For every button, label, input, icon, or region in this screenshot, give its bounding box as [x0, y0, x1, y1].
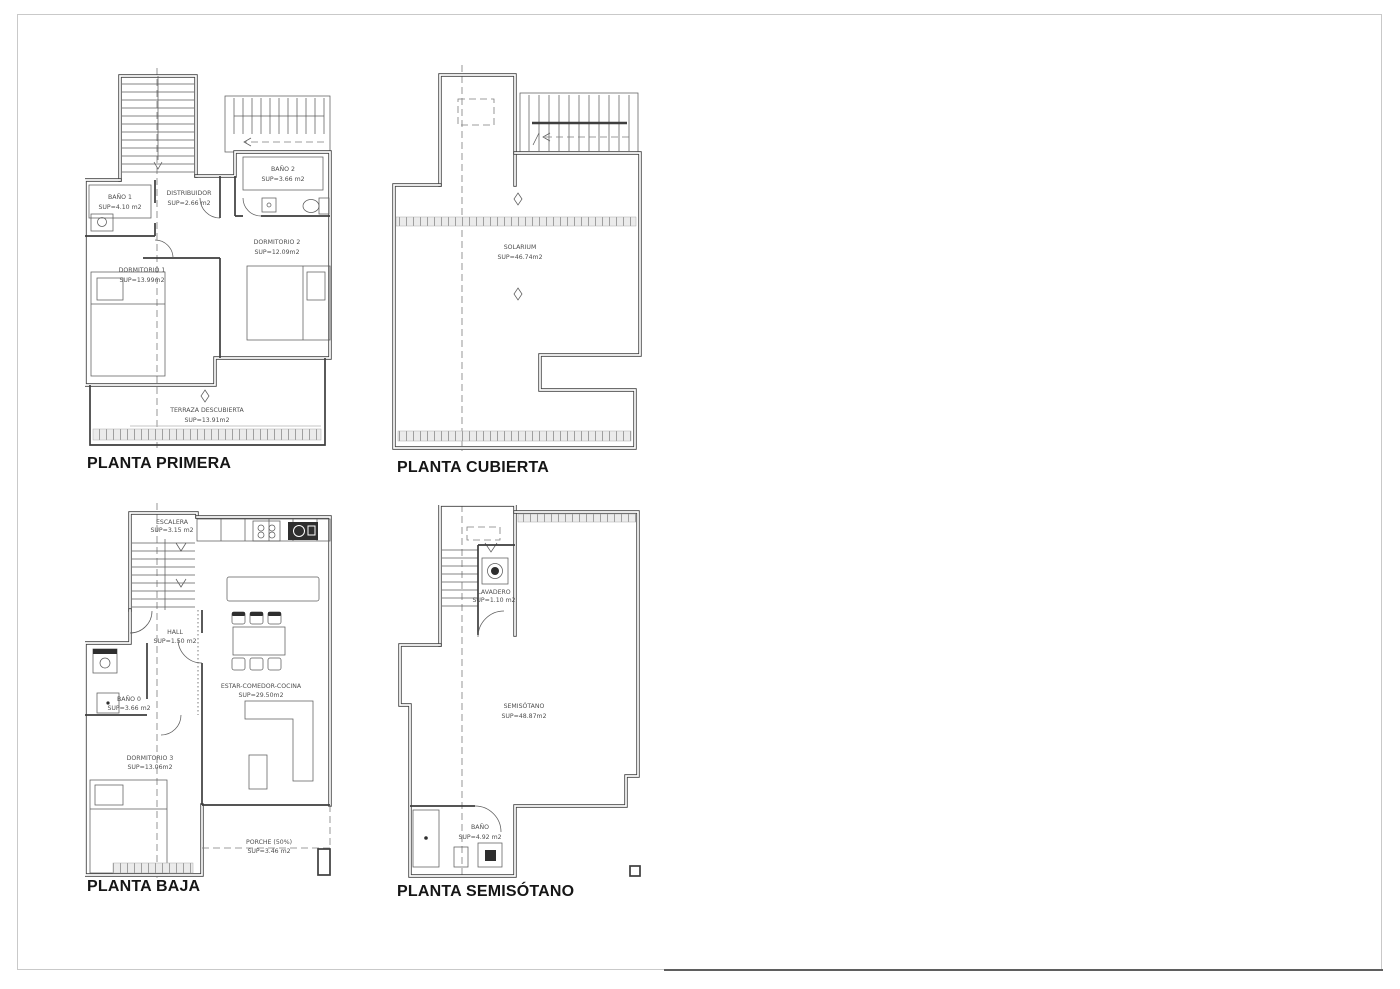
plan-title-planta-baja: PLANTA BAJA [87, 878, 200, 896]
room-name: TERRAZA DESCUBIERTA [169, 407, 244, 414]
room-name: PORCHE (50%) [246, 839, 292, 846]
room-area: SUP=29.50m2 [238, 692, 283, 699]
kitchen-sink-icon [288, 522, 318, 540]
room-name: BAÑO 0 [117, 694, 141, 703]
room-name: LAVADERO [477, 589, 510, 596]
cooktop-icon [253, 521, 280, 541]
room-name: BAÑO [471, 822, 489, 831]
porch-pillar [318, 849, 330, 875]
room-name: BAÑO 1 [108, 192, 132, 201]
room-area: SUP=4.92 m2 [458, 834, 501, 841]
room-labels: SOLARIUM SUP=46.74m2 [497, 244, 542, 261]
title-block-line [664, 969, 1383, 971]
kitchen-counter [197, 519, 330, 601]
room-name: BAÑO 2 [271, 164, 295, 173]
room-area: SUP=3.15 m2 [150, 527, 193, 534]
door-swings [155, 198, 261, 258]
room-area: SUP=3.46 m2 [247, 848, 290, 855]
roof-joint-band [396, 217, 636, 226]
room-labels: LAVADERO SUP=1.10 m2 SEMISÓTANO SUP=48.8… [458, 589, 546, 841]
room-area: SUP=48.87m2 [501, 713, 546, 720]
room-area: SUP=13.99m2 [119, 277, 164, 284]
floorplan-planta-semisotano: LAVADERO SUP=1.10 m2 SEMISÓTANO SUP=48.8… [390, 505, 650, 880]
top-wall-band [518, 514, 636, 522]
room-name: DORMITORIO 3 [127, 755, 174, 762]
room-name: DISTRIBUIDOR [167, 190, 213, 197]
staircase [440, 505, 515, 645]
outer-walls [400, 512, 638, 876]
shower-icon [413, 810, 439, 867]
room-area: SUP=4.10 m2 [98, 204, 141, 211]
stair-arrow-icon [176, 543, 186, 551]
door-swing [478, 611, 504, 637]
dining-table [232, 612, 285, 670]
plan-title-planta-cubierta: PLANTA CUBIERTA [397, 459, 549, 477]
stair-arrow-icon [154, 162, 162, 169]
bathroom-fixtures [93, 649, 119, 713]
diamond-symbol-icon [514, 193, 522, 205]
roof-joint-band [398, 431, 631, 441]
room-area: SUP=1.10 m2 [472, 597, 515, 604]
threshold-band [113, 863, 193, 873]
upper-stair-flight [520, 93, 638, 153]
sofa [245, 701, 313, 789]
room-area: SUP=2.66 m2 [167, 200, 210, 207]
kitchen-island [227, 577, 319, 601]
detached-pillar [630, 866, 640, 876]
room-area: SUP=1.50 m2 [153, 638, 196, 645]
room-name: DORMITORIO 1 [119, 267, 166, 274]
room-name: SEMISÓTANO [504, 701, 545, 710]
upper-stair-flight [225, 96, 330, 152]
sink-icon [93, 649, 117, 673]
room-area: SUP=13.06m2 [127, 764, 172, 771]
room-name: SOLARIUM [504, 244, 537, 251]
room-name: HALL [167, 629, 183, 636]
floorplan-planta-cubierta: SOLARIUM SUP=46.74m2 [392, 65, 644, 455]
floorplan-planta-baja: ESCALERA SUP=3.15 m2 HALL SUP=1.50 m2 BA… [85, 503, 335, 878]
room-area: SUP=3.66 m2 [261, 176, 304, 183]
plan-title-planta-primera: PLANTA PRIMERA [87, 455, 231, 473]
stair-arrow-icon [533, 133, 550, 145]
floorplan-planta-primera: BAÑO 1 SUP=4.10 m2 DISTRIBUIDOR SUP=2.66… [85, 68, 335, 453]
room-name: DORMITORIO 2 [254, 239, 301, 246]
room-area: SUP=3.66 m2 [107, 705, 150, 712]
door-swings [130, 611, 202, 735]
sink-icon [262, 198, 276, 212]
room-name: ESTAR-COMEDOR-COCINA [221, 683, 302, 690]
terrace [90, 358, 325, 445]
room-area: SUP=12.09m2 [254, 249, 299, 256]
sink-icon [478, 843, 502, 867]
outer-walls [394, 153, 640, 448]
bed-furniture [90, 780, 167, 873]
room-area: SUP=46.74m2 [497, 254, 542, 261]
diamond-symbol-icon [514, 288, 522, 300]
diamond-symbol-icon [201, 390, 209, 402]
staircase [120, 76, 196, 180]
stair-bulkhead [440, 75, 515, 185]
toilet-icon [303, 198, 329, 214]
sink-icon [91, 214, 113, 231]
room-area: SUP=13.91m2 [184, 417, 229, 424]
washing-machine-icon [482, 558, 508, 584]
scanned-floorplan-sheet: { "sheet": { "background": "#ffffff", "b… [0, 0, 1400, 989]
plan-title-planta-semisotano: PLANTA SEMISÓTANO [397, 883, 574, 901]
toilet-icon [454, 847, 468, 867]
room-name: ESCALERA [156, 519, 189, 526]
